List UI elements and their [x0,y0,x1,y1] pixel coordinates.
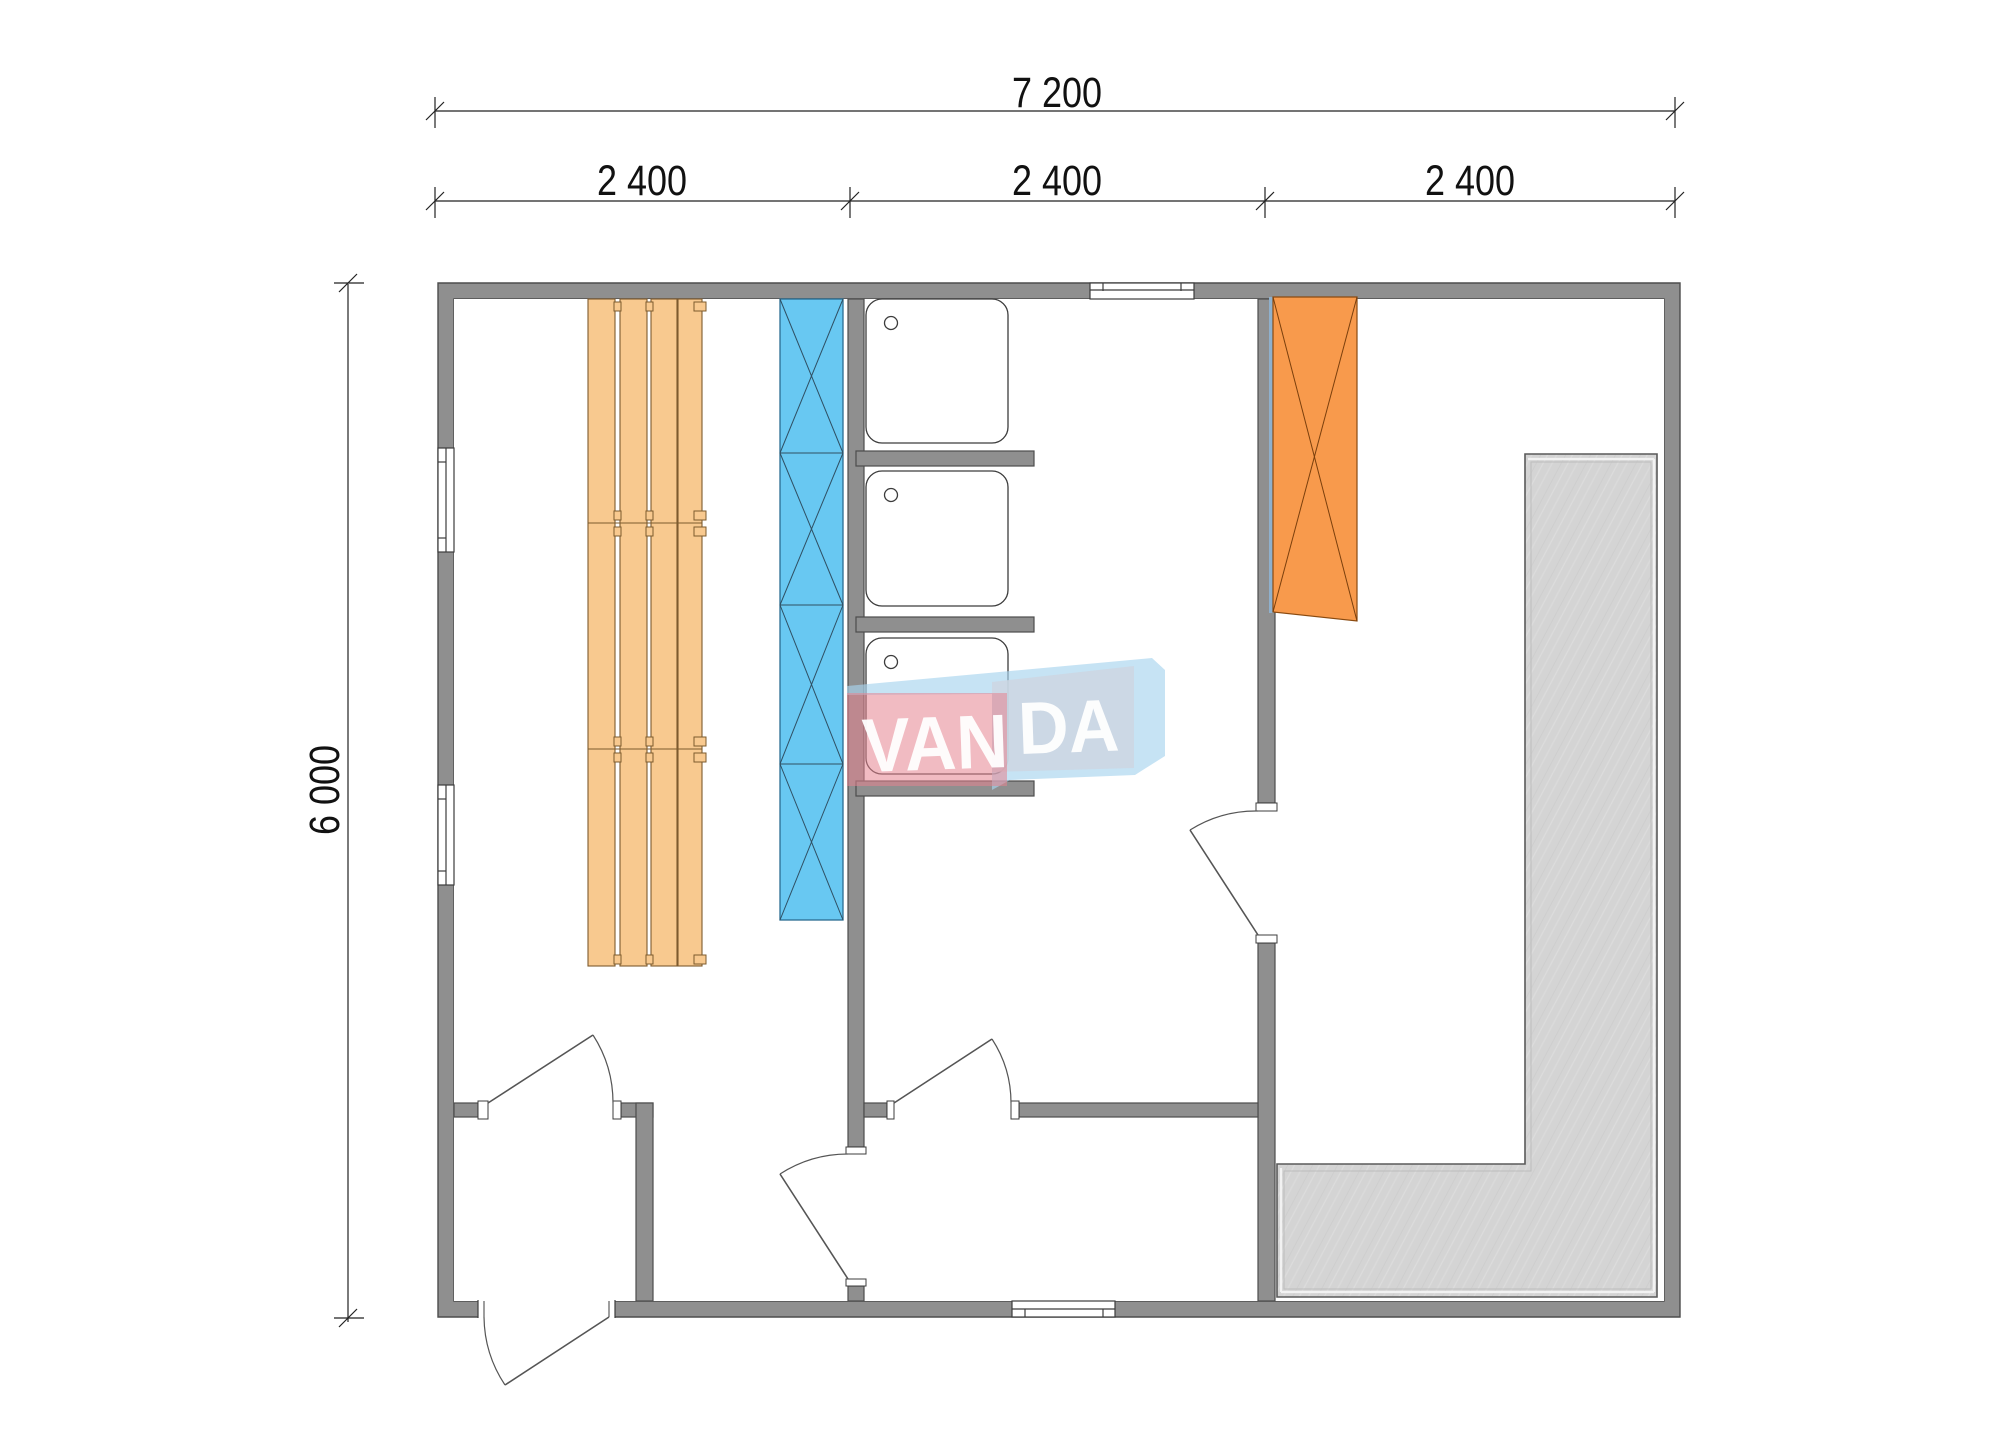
svg-text:2 400: 2 400 [1425,157,1515,205]
svg-text:VAN: VAN [861,699,1010,789]
svg-text:6 000: 6 000 [301,745,349,835]
svg-text:2 400: 2 400 [597,157,687,205]
svg-text:DA: DA [1017,684,1121,770]
svg-text:2 400: 2 400 [1012,157,1102,205]
svg-text:7 200: 7 200 [1012,69,1102,117]
